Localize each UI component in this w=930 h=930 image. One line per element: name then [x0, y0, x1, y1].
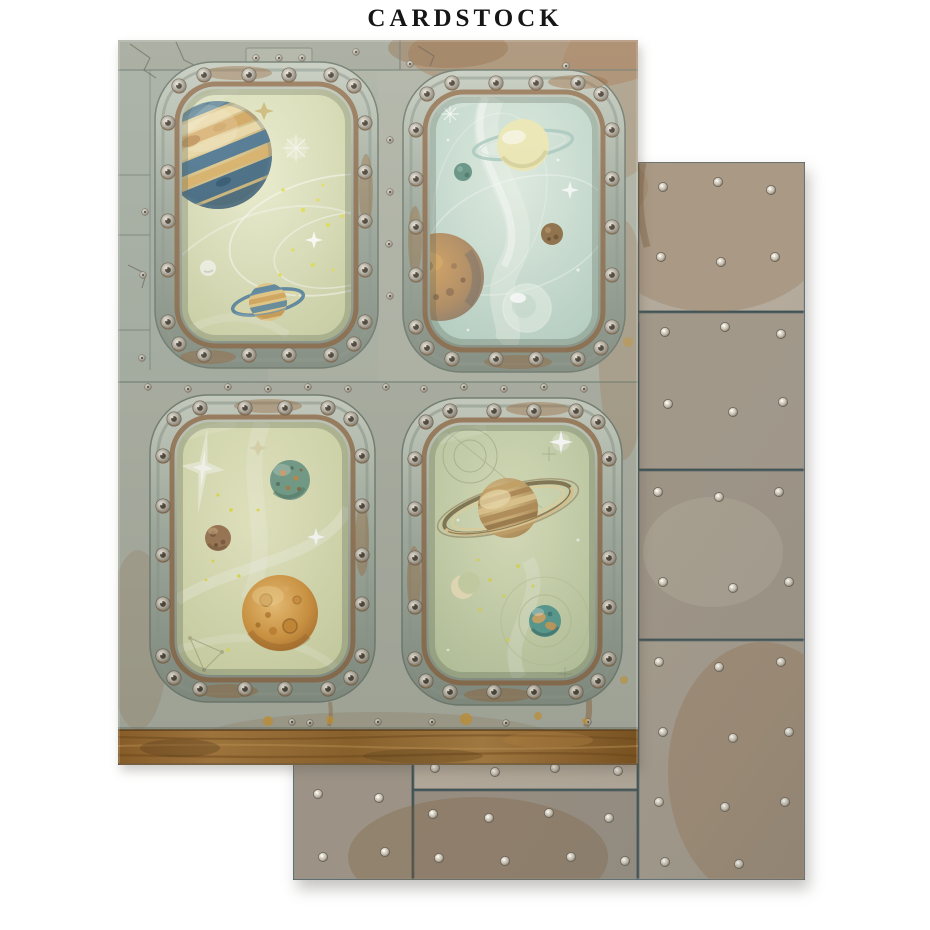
front-sheet-art [118, 40, 638, 765]
product-title: CARDSTOCK [0, 5, 930, 33]
cardstock-front-sheet [118, 40, 638, 765]
product-photo: CARDSTOCK [0, 0, 930, 930]
